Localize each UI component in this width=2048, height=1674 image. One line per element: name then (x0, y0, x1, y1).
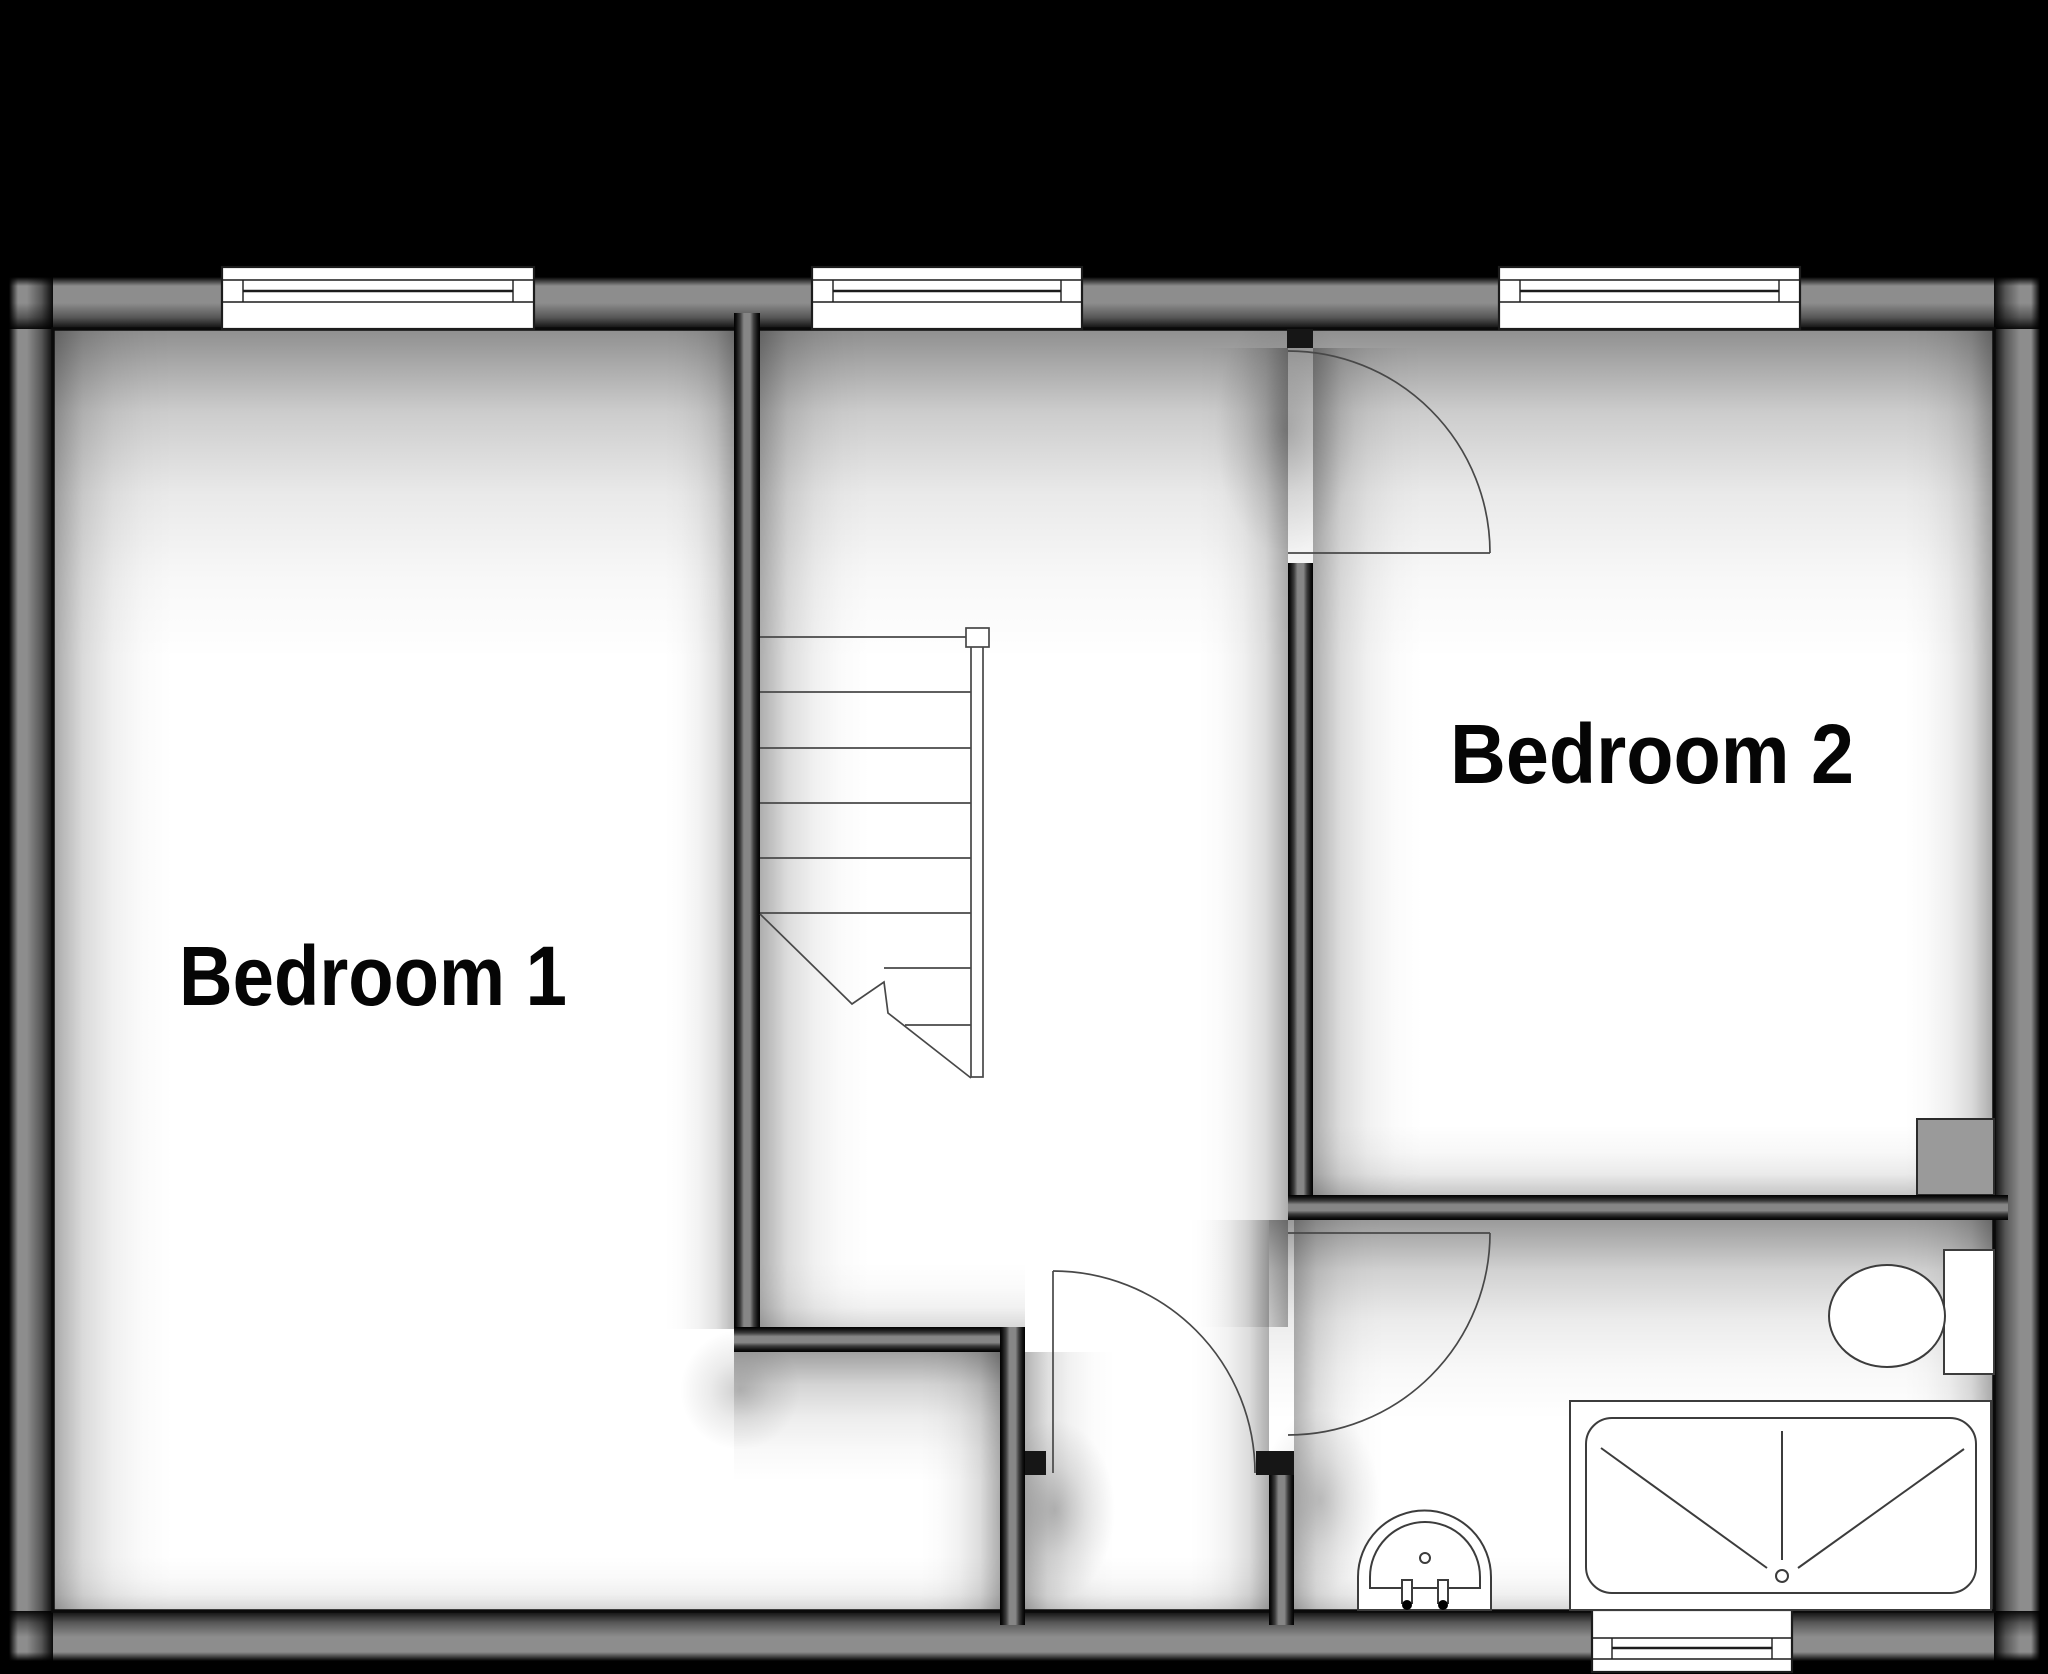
svg-text:Bedroom 2: Bedroom 2 (1450, 707, 1854, 801)
svg-text:Bedroom 1: Bedroom 1 (179, 929, 567, 1023)
